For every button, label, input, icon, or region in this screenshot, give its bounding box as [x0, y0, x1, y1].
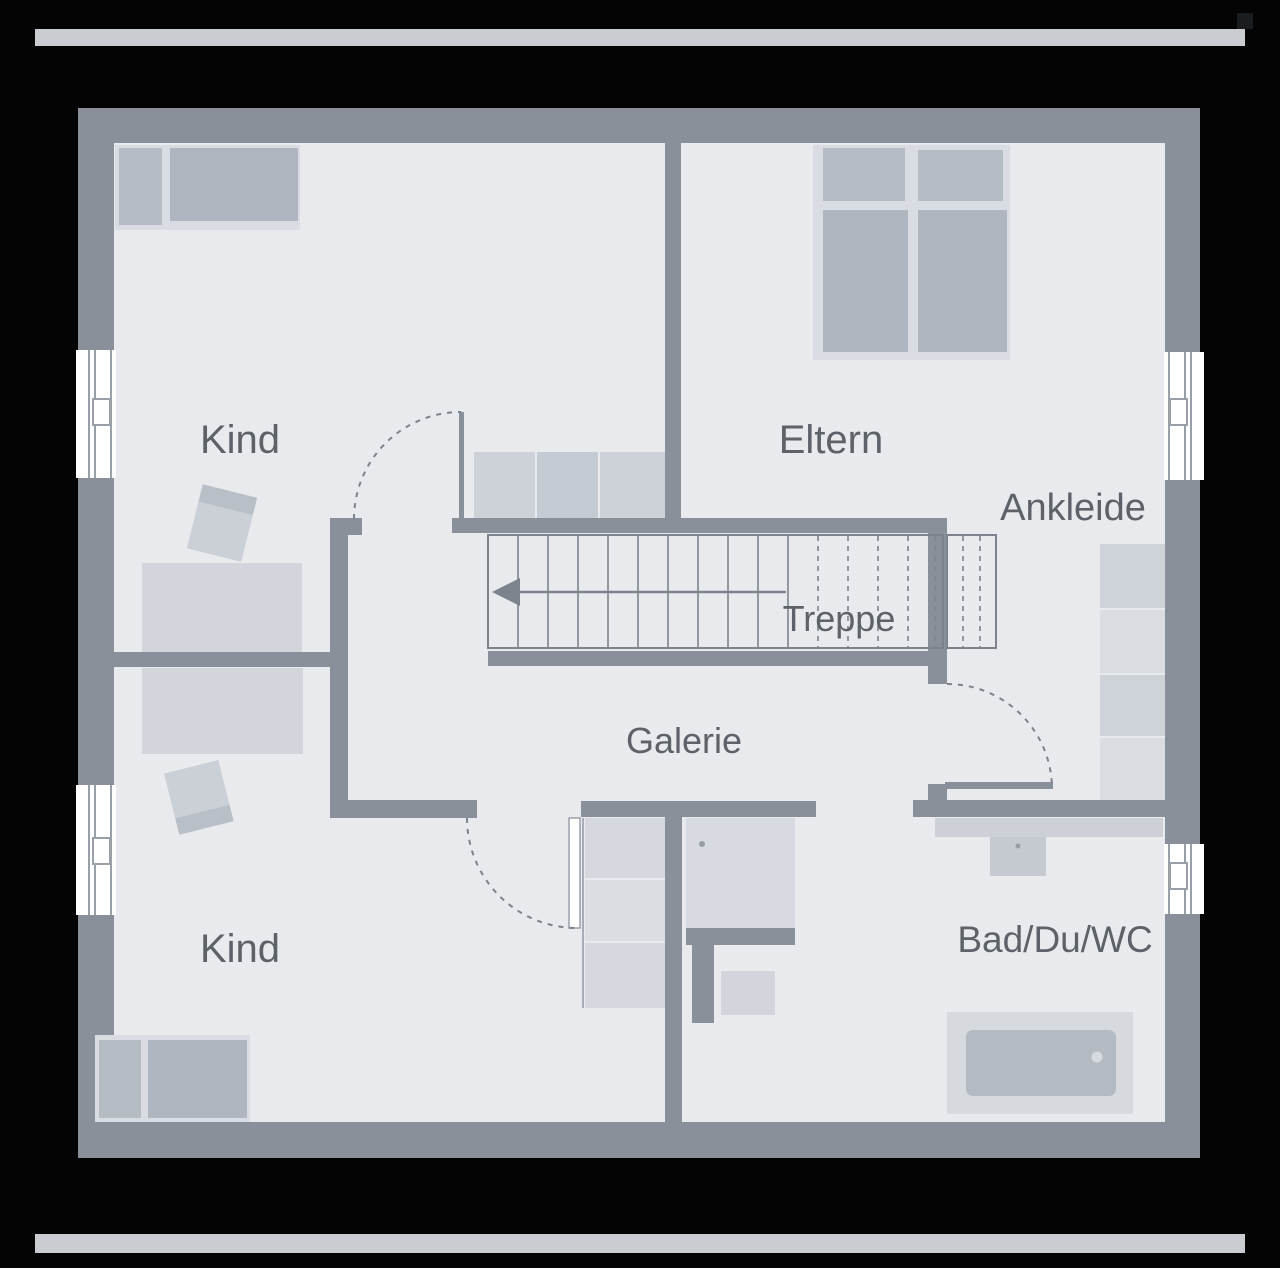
bottom-divider-bar [35, 1234, 1245, 1253]
wall-bad-top [913, 800, 1165, 817]
label-kind-top: Kind [200, 418, 280, 462]
bathtub-drain [1092, 1052, 1103, 1063]
sink-tap-dot [1016, 844, 1021, 849]
window-handle [93, 399, 110, 425]
toilet [721, 971, 775, 1015]
wall-bad-jamb [928, 784, 947, 800]
sideboard-section [474, 452, 535, 518]
wall-shower-band [686, 928, 795, 945]
label-bad: Bad/Du/WC [957, 919, 1152, 960]
bed-mattress-left [823, 210, 908, 352]
shower-dresser [686, 818, 795, 928]
window-left-bottom [76, 785, 116, 915]
shower-tray [686, 818, 795, 928]
label-ankleide: Ankleide [1000, 487, 1146, 529]
label-kind-bottom: Kind [200, 927, 280, 971]
wall-galerie-corner [330, 518, 362, 535]
wardrobe-section [1100, 738, 1165, 802]
wall-stair-top [452, 518, 943, 533]
vanity-counter [935, 818, 1163, 837]
bed-eltern [813, 145, 1010, 360]
bed2-kind-bottom [142, 668, 303, 754]
window-handle [93, 838, 110, 864]
wardrobe-section [1100, 610, 1165, 673]
wall-stair-bottom [488, 651, 943, 666]
door-leaf [569, 818, 580, 928]
wall-galerie-bottom-left [330, 800, 477, 818]
closet-edge [582, 818, 584, 1008]
sideboard-section [600, 452, 665, 518]
bed2-kind-top [142, 563, 302, 652]
window-handle [1170, 863, 1187, 889]
wall-kind-eltern [665, 143, 681, 518]
sink-basin [990, 837, 1046, 876]
door-leaf [945, 782, 1053, 789]
sink [990, 837, 1046, 876]
window-right-bottom [1164, 844, 1204, 914]
sideboard-section [537, 452, 598, 518]
window-handle [1170, 399, 1187, 425]
label-eltern: Eltern [779, 418, 884, 462]
bed-mattress [148, 1040, 247, 1118]
wall-toilet-stub [692, 945, 714, 1023]
wall-center-vertical [665, 817, 682, 1122]
wall-galerie-left [330, 535, 348, 800]
label-treppe: Treppe [783, 598, 896, 639]
closet-section [585, 818, 665, 878]
bed-pillow-left [823, 148, 905, 201]
closet-unit [582, 818, 665, 1008]
door-leaf [459, 412, 464, 519]
top-right-notch [1237, 13, 1253, 29]
wall-stair-right [928, 518, 947, 684]
window-left-top [76, 350, 116, 478]
bed-pillow-right [918, 150, 1003, 201]
bed-mattress-right [918, 210, 1007, 352]
closet-section [585, 943, 665, 1008]
top-divider-bar [35, 29, 1245, 46]
wardrobe-ankleide [1100, 544, 1165, 802]
wardrobe-section [1100, 544, 1165, 608]
wall-center-bottom [581, 801, 816, 817]
sideboard-landing [474, 452, 665, 518]
bed-kind-top [115, 145, 300, 230]
wall-kind-divider [114, 652, 330, 667]
window-right-top [1164, 352, 1204, 480]
bed-kind-bottom [95, 1035, 250, 1122]
bathtub [947, 1012, 1133, 1114]
floor-plan-canvas: Kind Eltern Ankleide Treppe Galerie Kind… [0, 0, 1280, 1268]
bed-pillow [99, 1040, 141, 1118]
wardrobe-section [1100, 675, 1165, 736]
bathtub-basin [966, 1030, 1116, 1096]
label-galerie: Galerie [626, 720, 742, 761]
bed-pillow [119, 148, 162, 225]
drain-dot [699, 841, 705, 847]
bed-mattress [170, 148, 298, 221]
floor-plan-page: Kind Eltern Ankleide Treppe Galerie Kind… [0, 0, 1280, 1268]
closet-section [585, 880, 665, 941]
